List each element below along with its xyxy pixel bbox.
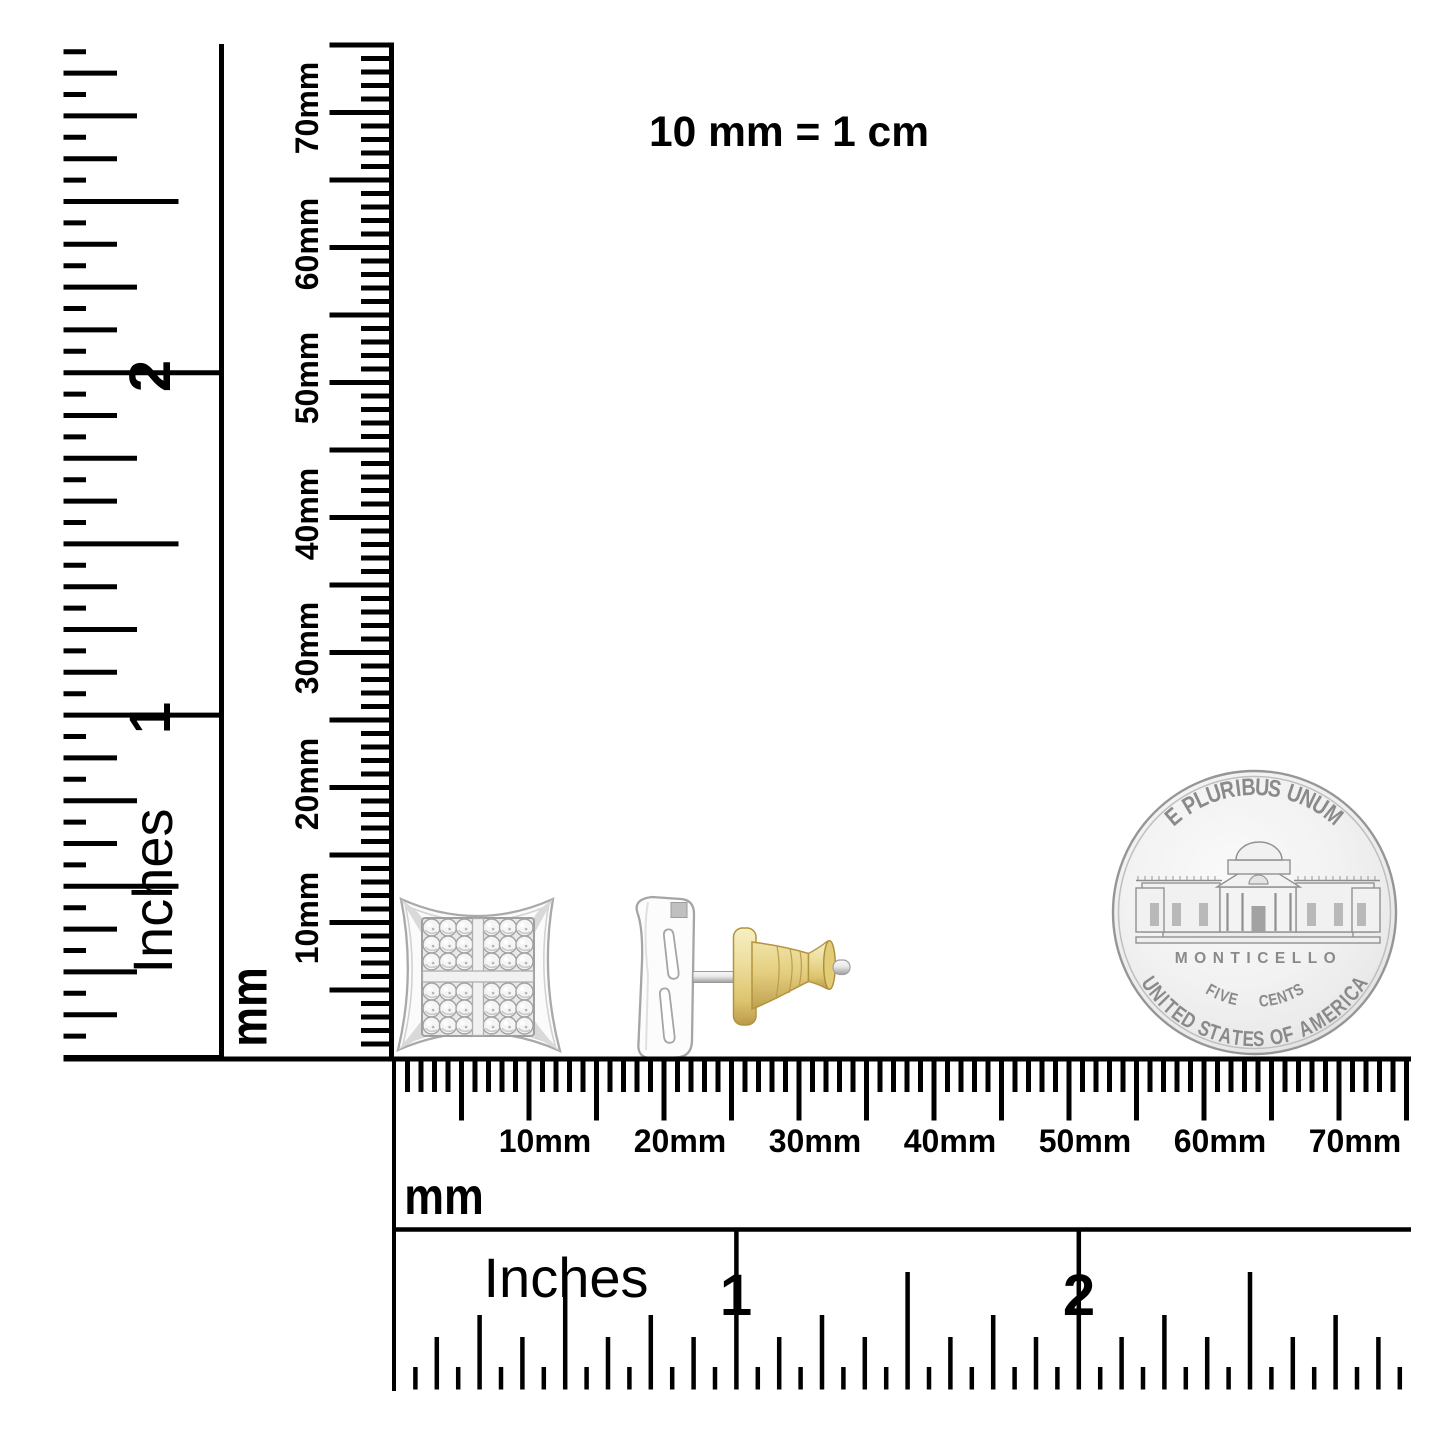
svg-text:10mm: 10mm — [289, 872, 325, 965]
svg-text:10mm: 10mm — [499, 1123, 592, 1159]
svg-text:Inches: Inches — [121, 809, 184, 974]
svg-text:mm: mm — [220, 967, 278, 1047]
svg-text:50mm: 50mm — [1039, 1123, 1132, 1159]
svg-text:10 mm = 1 cm: 10 mm = 1 cm — [649, 109, 929, 156]
svg-text:40mm: 40mm — [289, 468, 325, 561]
svg-text:mm: mm — [404, 1168, 484, 1226]
svg-text:60mm: 60mm — [1174, 1123, 1267, 1159]
svg-text:MONTICELLO: MONTICELLO — [1175, 950, 1342, 967]
svg-text:Inches: Inches — [484, 1246, 649, 1309]
svg-text:60mm: 60mm — [289, 198, 325, 291]
svg-text:1: 1 — [720, 1263, 752, 1328]
svg-text:40mm: 40mm — [904, 1123, 997, 1159]
svg-text:50mm: 50mm — [289, 332, 325, 425]
svg-text:2: 2 — [118, 360, 183, 392]
svg-text:30mm: 30mm — [769, 1123, 862, 1159]
svg-text:1: 1 — [118, 702, 183, 734]
svg-text:70mm: 70mm — [1309, 1123, 1402, 1159]
svg-text:20mm: 20mm — [289, 738, 325, 831]
svg-text:2: 2 — [1063, 1263, 1095, 1328]
svg-text:S: S — [1253, 1027, 1265, 1052]
svg-text:30mm: 30mm — [289, 602, 325, 695]
svg-text:20mm: 20mm — [634, 1123, 727, 1159]
svg-text:70mm: 70mm — [289, 62, 325, 155]
